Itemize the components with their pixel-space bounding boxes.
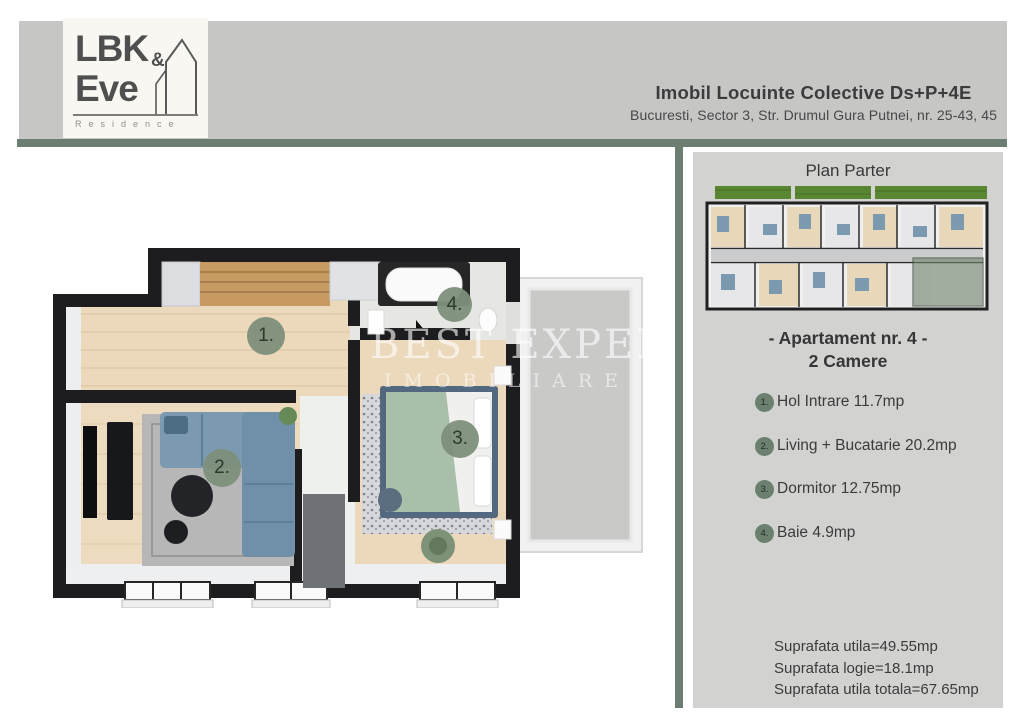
house-icon: [152, 32, 198, 116]
room-badge-4: 4.: [437, 287, 472, 322]
building-address: Bucuresti, Sector 3, Str. Drumul Gura Pu…: [620, 107, 1007, 123]
flyer-page: LBK & Eve Residence Imobil Locuinte Cole…: [0, 0, 1024, 724]
room-list-item: 4. Baie 4.9mp: [755, 523, 855, 543]
apartment-subtitle: 2 Camere: [693, 351, 1003, 372]
building-title: Imobil Locuinte Colective Ds+P+4E: [620, 82, 1007, 104]
room-list-item: 3. Dormitor 12.75mp: [755, 479, 901, 499]
total-line: Suprafata logie=18.1mp: [774, 658, 979, 680]
room-number-badge: 3.: [755, 480, 774, 499]
corridor-door: [303, 494, 345, 588]
horizontal-divider: [17, 139, 1007, 147]
room-list-item: 1. Hol Intrare 11.7mp: [755, 392, 904, 412]
room-label: Dormitor 12.75mp: [777, 480, 901, 498]
vertical-divider: [675, 147, 683, 708]
hall-furniture: [162, 262, 380, 306]
floor-plan-drawing: [50, 244, 650, 608]
grass-strips: [715, 186, 987, 199]
room-badge-2: 2.: [203, 449, 241, 487]
total-line: Suprafata utila=49.55mp: [774, 636, 979, 658]
room-list-item: 2. Living + Bucatarie 20.2mp: [755, 436, 957, 456]
room-number-badge: 1.: [755, 393, 774, 412]
apartment-title: - Apartament nr. 4 -: [693, 328, 1003, 349]
logo-word-lbk: LBK: [75, 28, 148, 70]
logo: LBK & Eve Residence: [63, 18, 208, 138]
room-number-badge: 4.: [755, 524, 774, 543]
info-sidebar: Plan Parter: [693, 152, 1003, 708]
room-number-badge: 2.: [755, 437, 774, 456]
room-badge-1: 1.: [247, 317, 285, 355]
apartment-highlight: [913, 258, 983, 306]
balcony: [518, 278, 642, 552]
logo-subtitle: Residence: [75, 119, 181, 129]
bedroom-furniture: [362, 366, 511, 563]
plan-level-title: Plan Parter: [693, 161, 1003, 181]
room-label: Living + Bucatarie 20.2mp: [777, 437, 957, 455]
logo-word-eve: Eve: [75, 68, 138, 110]
mini-floor-plan: [703, 186, 991, 314]
room-label: Hol Intrare 11.7mp: [777, 393, 904, 411]
total-line: Suprafata utila totala=67.65mp: [774, 679, 979, 701]
logo-divider: [73, 114, 198, 116]
room-badge-3: 3.: [441, 420, 479, 458]
room-label: Baie 4.9mp: [777, 524, 855, 542]
apartment-floor-plan: 1. 2. 3. 4. BEST EXPERT IMOBILIARE: [20, 150, 670, 724]
area-totals: Suprafata utila=49.55mp Suprafata logie=…: [774, 636, 979, 701]
